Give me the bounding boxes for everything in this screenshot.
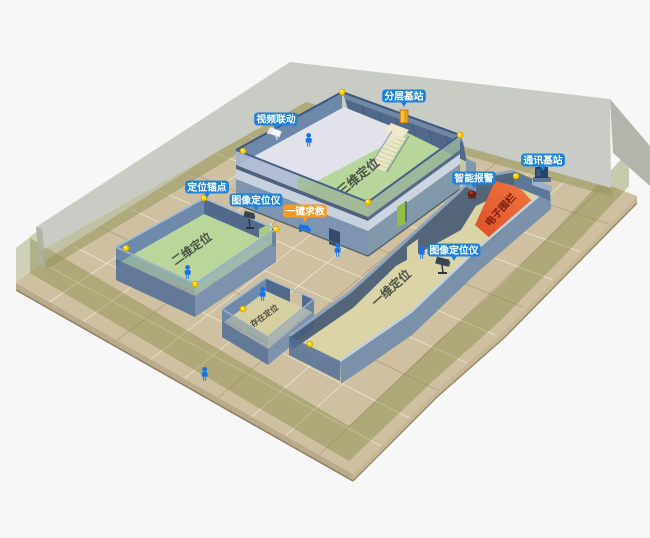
svg-text:图像定位仪: 图像定位仪 <box>430 243 479 256</box>
svg-text:定位锚点: 定位锚点 <box>186 180 226 193</box>
svg-text:图像定位仪: 图像定位仪 <box>232 193 281 206</box>
svg-text:视频联动: 视频联动 <box>256 112 295 125</box>
svg-text:一键求救: 一键求救 <box>285 204 324 217</box>
svg-text:智能报警: 智能报警 <box>454 171 493 184</box>
svg-text:通讯基站: 通讯基站 <box>523 153 562 166</box>
svg-text:分层基站: 分层基站 <box>384 89 423 102</box>
